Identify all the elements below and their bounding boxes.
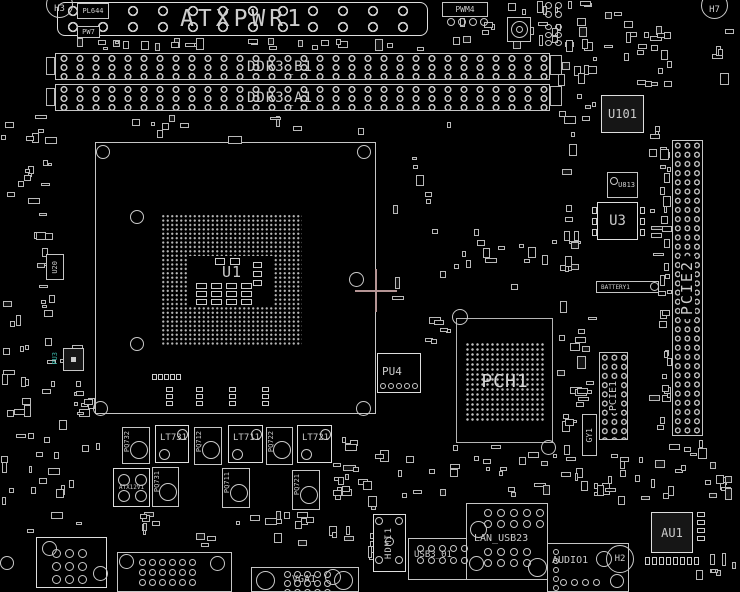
passive-part	[725, 476, 731, 483]
passive-part	[667, 61, 672, 68]
passive-part	[368, 496, 377, 507]
pin-hole	[497, 509, 505, 517]
pin-hole	[78, 575, 87, 584]
mount-hole	[516, 26, 523, 33]
passive-part	[375, 39, 383, 50]
passive-part	[563, 414, 568, 419]
pin-hole	[294, 580, 301, 587]
pin-pad	[659, 557, 664, 565]
passive-part	[498, 246, 505, 249]
mount-hole	[130, 210, 144, 224]
passive-part	[651, 233, 661, 237]
passive-part	[564, 445, 569, 455]
passive-part	[711, 569, 717, 573]
mount-hole	[256, 571, 275, 590]
passive-part	[566, 40, 573, 51]
passive-part	[45, 338, 52, 346]
passive-part	[559, 111, 566, 118]
passive-part	[346, 526, 350, 535]
h3-label: H3	[54, 0, 65, 14]
passive-part	[180, 123, 189, 127]
mount-hole	[541, 440, 556, 455]
passive-part	[559, 335, 565, 341]
pin-pad	[253, 262, 262, 268]
passive-part	[611, 454, 618, 458]
passive-part	[1, 135, 6, 139]
pin-pad	[166, 401, 173, 406]
pin-pad	[697, 528, 705, 533]
pu4-label: PU4	[382, 366, 402, 377]
passive-part	[665, 274, 670, 279]
pin-hole	[189, 569, 196, 576]
passive-part	[132, 119, 141, 126]
pin-hole	[149, 569, 156, 576]
pcie-x1-slot: PCIE1	[599, 352, 628, 440]
socket-tab	[228, 136, 242, 144]
mosfet-pq732: PQ732	[122, 427, 150, 464]
gy1-label: GY1	[586, 428, 594, 442]
passive-part	[368, 546, 372, 558]
passive-part	[151, 122, 156, 126]
passive-part	[29, 466, 33, 472]
u20-label: U20	[52, 261, 59, 274]
passive-part	[171, 42, 178, 48]
passive-part	[429, 469, 435, 474]
passive-part	[651, 479, 655, 488]
pin-pad	[229, 387, 236, 392]
passive-part	[577, 18, 586, 26]
pin-pad	[211, 299, 222, 305]
passive-part	[637, 50, 644, 55]
passive-part	[483, 248, 490, 257]
passive-part	[659, 321, 667, 328]
passive-part	[620, 457, 629, 462]
passive-part	[77, 412, 84, 415]
passive-part	[42, 389, 51, 393]
mount-hole	[469, 556, 484, 571]
pin-hole	[536, 520, 544, 528]
passive-part	[582, 39, 588, 50]
ddr3-slot-b1: DDR3_B1	[55, 53, 550, 80]
passive-part	[298, 40, 303, 46]
passive-part	[25, 345, 29, 349]
passive-part	[663, 196, 671, 207]
pin-hole	[439, 545, 446, 552]
passive-part	[662, 226, 672, 232]
passive-part	[732, 562, 736, 569]
pq712-label: PQ712	[196, 431, 203, 452]
pin-hole	[484, 559, 492, 567]
passive-part	[466, 260, 471, 268]
passive-part	[605, 12, 612, 20]
au1-chip: AU1	[651, 512, 693, 553]
pin-hole	[553, 558, 559, 564]
mount-hole	[610, 574, 624, 588]
lt731-label: LT731	[160, 434, 187, 443]
passive-part	[649, 149, 657, 157]
pin-hole	[560, 579, 567, 586]
passive-part	[312, 45, 317, 50]
passive-part	[571, 242, 580, 250]
passive-part	[582, 116, 590, 120]
passive-part	[645, 81, 652, 87]
pin-hole	[284, 580, 291, 587]
passive-part	[664, 239, 671, 248]
passive-part	[716, 475, 724, 484]
slot-latch	[46, 57, 55, 75]
passive-part	[236, 521, 241, 525]
passive-part	[657, 33, 665, 38]
pin-pad	[229, 394, 236, 399]
passive-part	[196, 38, 204, 50]
passive-part	[500, 467, 508, 470]
passive-part	[392, 296, 404, 300]
passive-part	[638, 44, 647, 49]
passive-part	[35, 115, 47, 119]
passive-part	[660, 275, 665, 286]
mount-hole	[528, 558, 547, 577]
mount-hole	[0, 556, 14, 570]
h2-label: H2	[615, 555, 626, 564]
crosshair-vertical	[375, 269, 377, 312]
pin-hole	[139, 579, 146, 586]
pin-hole	[553, 576, 559, 582]
passive-part	[699, 440, 703, 447]
passive-part	[141, 41, 149, 50]
passive-part	[696, 570, 704, 580]
passive-part	[48, 163, 52, 166]
passive-part	[608, 476, 612, 484]
passive-part	[140, 514, 146, 519]
passive-part	[662, 374, 667, 379]
atx12v-connector: ATX12V1	[113, 468, 150, 507]
pin-hole	[497, 520, 505, 528]
passive-part	[45, 137, 57, 145]
pin-hole	[545, 2, 552, 9]
pin-pad	[166, 387, 173, 392]
passive-part	[578, 329, 585, 334]
pin-pad	[697, 520, 705, 525]
passive-part	[45, 233, 52, 241]
pin-pad	[592, 229, 597, 236]
pin-pad	[262, 394, 269, 399]
pin-hole	[497, 548, 505, 556]
passive-part	[115, 41, 120, 44]
pin-hole	[555, 24, 562, 30]
pin-hole	[179, 569, 186, 576]
lt721-label: LT721	[302, 434, 329, 443]
pin-pad	[226, 299, 237, 305]
pch-outline: PCH1	[456, 318, 553, 443]
mount-hole	[325, 569, 341, 585]
pin-hole	[555, 11, 562, 18]
pin-hole	[78, 549, 87, 558]
passive-part	[56, 489, 65, 498]
passive-part	[453, 37, 460, 44]
pin-hole	[149, 579, 156, 586]
passive-part	[653, 253, 664, 256]
mount-hole	[210, 556, 225, 571]
pch-label: PCH1	[481, 373, 528, 391]
pin-pad	[592, 218, 597, 225]
passive-part	[644, 32, 650, 38]
passive-part	[477, 240, 485, 246]
pin-pad	[158, 374, 163, 380]
pin-pad	[196, 387, 203, 392]
passive-part	[605, 488, 616, 493]
passive-part	[416, 175, 424, 186]
pin-hole	[555, 2, 562, 9]
pin-hole	[149, 559, 156, 566]
mosfet-pad	[273, 441, 291, 459]
pin-hole	[169, 569, 176, 576]
pq722-label: PQ722	[268, 431, 275, 452]
pcb-diagram: ATXPWR1 PWM4 PL644 PW7 DDR3_B1 DDR3_A1 U…	[0, 0, 740, 592]
passive-part	[569, 144, 578, 156]
pin-hole	[484, 509, 492, 517]
passive-part	[576, 402, 585, 407]
passive-part	[662, 310, 670, 316]
passive-part	[413, 490, 421, 494]
pin-hole	[450, 557, 457, 564]
mount-hole	[93, 566, 108, 581]
pin-pad	[694, 557, 699, 565]
mount-hole	[93, 401, 108, 416]
pin-hole	[510, 548, 518, 556]
mount-hole	[130, 337, 144, 351]
passive-part	[51, 512, 63, 519]
passive-part	[76, 381, 81, 387]
mount-hole	[42, 541, 57, 556]
passive-part	[626, 32, 631, 43]
pin-hole	[555, 40, 562, 46]
pcie1-label: PCIE1	[609, 379, 619, 413]
passive-part	[344, 536, 354, 541]
passive-part	[543, 485, 551, 495]
passive-part	[69, 480, 74, 488]
passive-part	[26, 136, 35, 141]
passive-part	[276, 511, 280, 521]
pin-pad	[253, 280, 262, 286]
passive-part	[426, 199, 431, 204]
passive-part	[718, 49, 724, 57]
passive-part	[7, 192, 15, 197]
passive-part	[2, 497, 7, 506]
passive-part	[667, 167, 672, 172]
ddr3-a1-label: DDR3_A1	[247, 91, 313, 105]
pu3-chip	[63, 348, 84, 371]
mosfet-pad	[159, 483, 177, 501]
pin-pad	[196, 401, 203, 406]
pin-hole	[65, 549, 74, 558]
u20-chip: U20	[46, 254, 64, 280]
passive-part	[486, 467, 490, 471]
passive-part	[655, 460, 665, 468]
slot-latch	[550, 55, 562, 75]
slot-latch	[46, 88, 55, 106]
pin-hole	[52, 562, 61, 571]
passive-part	[562, 62, 570, 70]
pin-pad	[680, 557, 685, 565]
pin-hole	[497, 559, 505, 567]
mount-hole	[470, 521, 487, 538]
inductor-lt721: LT721	[297, 425, 332, 463]
pin-hole	[159, 569, 166, 576]
pin-hole	[314, 571, 321, 578]
passive-part	[334, 477, 340, 481]
passive-part	[152, 521, 161, 526]
passive-part	[77, 38, 83, 47]
passive-part	[630, 32, 637, 38]
pcie-x16-slot: PCIE2	[672, 140, 703, 436]
mount-hole	[357, 145, 371, 159]
passive-part	[2, 374, 9, 385]
passive-part	[663, 493, 669, 499]
pin-hole	[78, 562, 87, 571]
passive-part	[16, 315, 21, 325]
passive-part	[651, 45, 658, 51]
passive-part	[650, 134, 660, 139]
passive-part	[440, 489, 446, 496]
passive-part	[375, 454, 384, 459]
passive-part	[657, 425, 664, 430]
pin-hole	[135, 474, 147, 486]
passive-part	[342, 486, 350, 492]
u3-label: U3	[609, 214, 626, 228]
pin-pad	[687, 557, 692, 565]
pin-pad	[196, 291, 207, 297]
passive-part	[660, 165, 666, 170]
pin-pad	[262, 401, 269, 406]
passive-part	[345, 444, 357, 451]
passive-part	[1, 456, 8, 462]
passive-part	[664, 351, 668, 358]
passive-part	[59, 420, 67, 429]
passive-part	[425, 192, 432, 196]
passive-part	[570, 343, 580, 351]
pin-hole	[545, 11, 552, 18]
mosfet-pad	[230, 484, 248, 502]
passive-part	[681, 465, 686, 471]
lt711-label: LT711	[233, 434, 260, 443]
passive-part	[508, 3, 516, 11]
pin-pad	[229, 401, 236, 406]
passive-part	[528, 247, 537, 258]
pin-hole	[484, 548, 492, 556]
passive-part	[39, 213, 48, 216]
passive-part	[519, 457, 526, 466]
passive-part	[667, 290, 671, 293]
pin-hole	[545, 32, 552, 38]
passive-part	[27, 529, 34, 533]
passive-part	[38, 129, 44, 134]
passive-part	[49, 295, 55, 303]
passive-part	[684, 447, 691, 452]
pin-hole	[510, 509, 518, 517]
passive-part	[620, 470, 626, 477]
pin-hole	[65, 562, 74, 571]
pin-pad	[652, 557, 657, 565]
pin-pad	[241, 299, 252, 305]
passive-part	[592, 102, 596, 107]
pin-pad	[196, 394, 203, 399]
passive-part	[542, 255, 548, 265]
passive-part	[268, 38, 274, 45]
passive-part	[269, 46, 277, 50]
passive-part	[491, 445, 501, 449]
passive-part	[395, 277, 401, 289]
pcie2-label: PCIE2	[680, 256, 695, 319]
passive-part	[103, 47, 108, 50]
cpu-socket: U1	[95, 142, 376, 414]
pin-pad	[640, 218, 645, 225]
au1-label: AU1	[661, 527, 683, 539]
passive-part	[413, 165, 419, 169]
passive-part	[406, 456, 415, 464]
passive-part	[566, 457, 576, 461]
pin-hole	[510, 559, 518, 567]
passive-part	[398, 470, 402, 477]
pin-pad	[152, 374, 157, 380]
pin-hole	[447, 18, 455, 26]
passive-part	[21, 377, 26, 387]
passive-part	[162, 123, 169, 130]
passive-part	[664, 206, 668, 213]
passive-part	[447, 122, 452, 128]
pin-hole	[439, 557, 446, 564]
u3-chip: U3	[597, 202, 638, 240]
passive-part	[440, 271, 446, 278]
mount-hole	[356, 401, 371, 416]
passive-part	[566, 205, 571, 212]
passive-part	[565, 419, 574, 425]
pin-pad	[166, 394, 173, 399]
passive-part	[585, 105, 591, 109]
passive-part	[41, 183, 50, 186]
pin-hole	[380, 383, 386, 389]
mosfet-pad	[300, 486, 318, 504]
passive-part	[564, 116, 575, 123]
pin-hole	[396, 383, 402, 389]
mount-hole	[395, 556, 403, 564]
passive-part	[36, 452, 43, 458]
passive-part	[274, 533, 282, 544]
pin-pad	[164, 374, 169, 380]
passive-part	[662, 385, 670, 392]
pin-pad	[697, 512, 705, 517]
pin-hole	[553, 585, 559, 591]
passive-part	[528, 452, 539, 459]
passive-part	[16, 434, 27, 438]
passive-part	[250, 515, 260, 521]
passive-part	[358, 128, 365, 134]
cpu-socket-label: U1	[222, 265, 242, 280]
pin-pad	[640, 229, 645, 236]
passive-part	[3, 348, 10, 355]
passive-part	[41, 300, 46, 304]
pin-pad	[226, 283, 237, 289]
pin-hole	[553, 549, 559, 555]
passive-part	[558, 74, 565, 86]
passive-part	[578, 397, 590, 401]
passive-part	[96, 443, 100, 450]
passive-part	[123, 41, 129, 49]
passive-part	[578, 73, 586, 84]
mount-hole	[375, 556, 383, 564]
passive-part	[582, 346, 590, 352]
pin-hole	[458, 18, 466, 26]
pin-hole	[139, 559, 146, 566]
